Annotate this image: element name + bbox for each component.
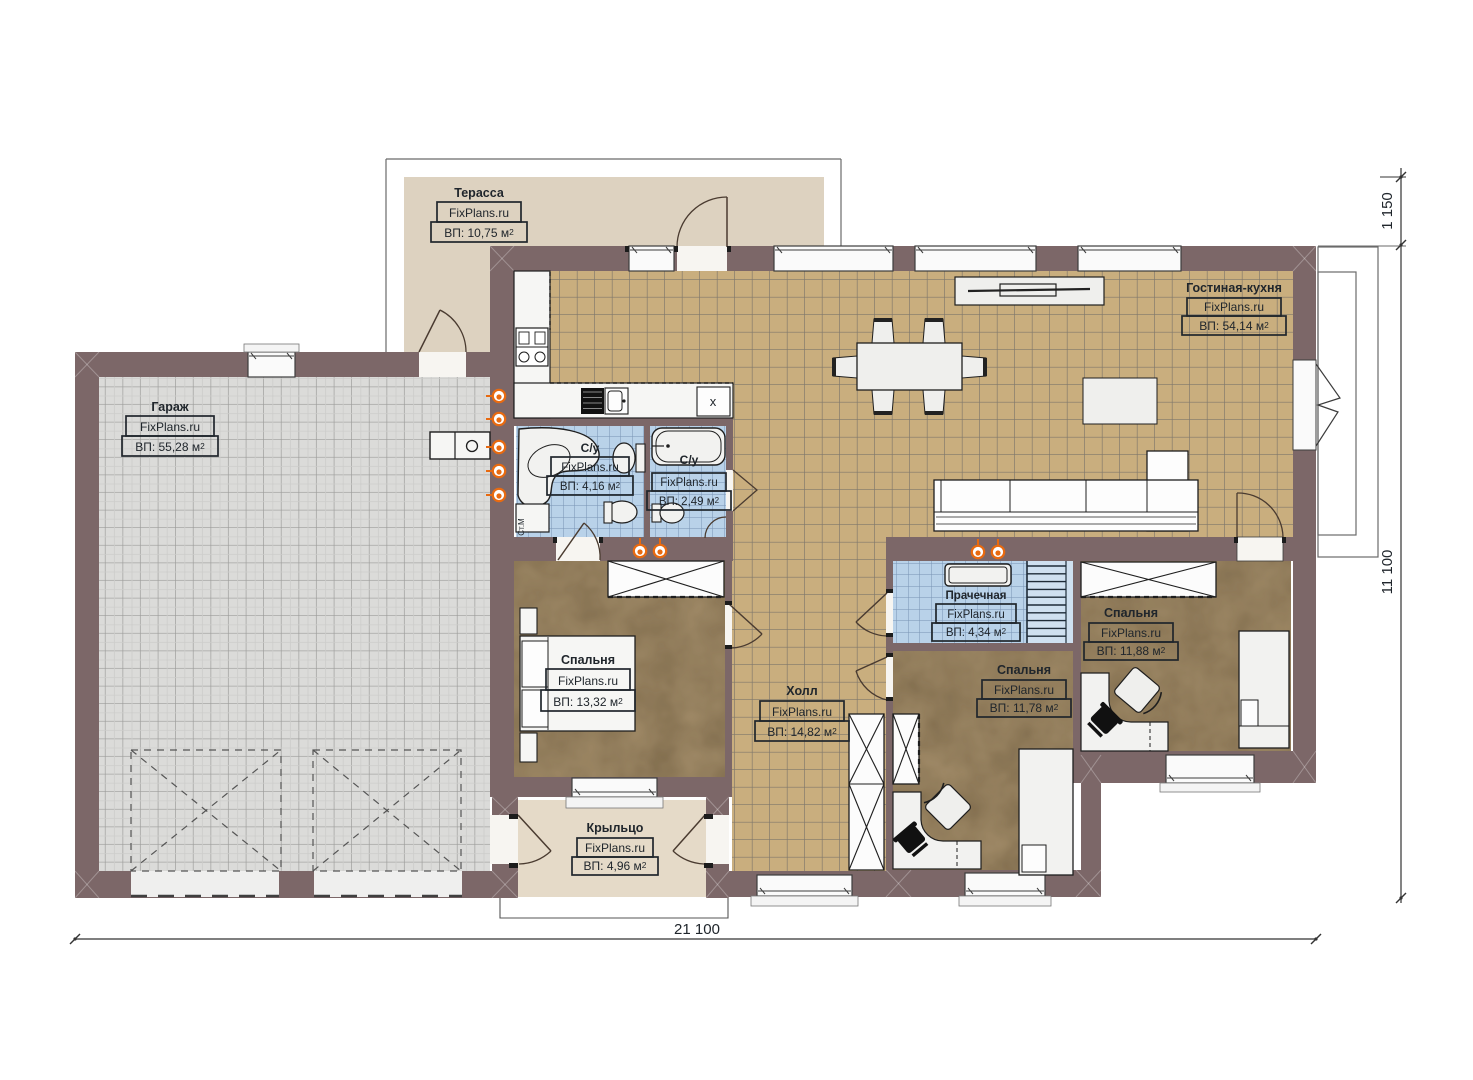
svg-text:Ст.М: Ст.М (517, 518, 526, 536)
svg-text:Крыльцо: Крыльцо (587, 821, 644, 835)
svg-text:Спальня: Спальня (561, 653, 615, 667)
svg-text:Гараж: Гараж (151, 400, 188, 414)
svg-text:ВП: 4,16 м2: ВП: 4,16 м2 (560, 481, 621, 493)
svg-text:FixPlans.ru: FixPlans.ru (585, 841, 645, 855)
svg-text:FixPlans.ru: FixPlans.ru (140, 420, 200, 434)
svg-text:FixPlans.ru: FixPlans.ru (772, 705, 832, 719)
svg-text:Прачечная: Прачечная (946, 590, 1007, 602)
svg-text:Спальня: Спальня (1104, 606, 1158, 620)
svg-text:21 100: 21 100 (674, 921, 720, 938)
svg-text:ВП: 55,28 м2: ВП: 55,28 м2 (135, 440, 205, 454)
svg-text:x: x (710, 394, 717, 409)
svg-text:ВП: 10,75 м2: ВП: 10,75 м2 (444, 226, 514, 240)
svg-text:FixPlans.ru: FixPlans.ru (1204, 300, 1264, 314)
svg-text:ВП: 11,78 м2: ВП: 11,78 м2 (990, 701, 1059, 715)
svg-text:Спальня: Спальня (997, 663, 1051, 677)
svg-text:FixPlans.ru: FixPlans.ru (947, 609, 1005, 621)
svg-text:ВП: 4,96 м2: ВП: 4,96 м2 (584, 859, 647, 873)
svg-text:ВП: 2,49 м2: ВП: 2,49 м2 (659, 496, 720, 508)
svg-text:FixPlans.ru: FixPlans.ru (558, 674, 618, 688)
svg-text:11 100: 11 100 (1379, 550, 1396, 595)
svg-text:FixPlans.ru: FixPlans.ru (449, 206, 509, 220)
svg-text:FixPlans.ru: FixPlans.ru (561, 462, 619, 474)
svg-text:ВП: 4,34 м2: ВП: 4,34 м2 (946, 627, 1007, 639)
svg-text:ВП: 11,88 м2: ВП: 11,88 м2 (1097, 644, 1166, 658)
svg-text:ВП: 54,14 м2: ВП: 54,14 м2 (1199, 319, 1269, 333)
svg-text:Холл: Холл (786, 684, 817, 698)
svg-text:ВП: 13,32 м2: ВП: 13,32 м2 (553, 695, 623, 709)
svg-text:С/у: С/у (581, 441, 600, 455)
svg-text:1 150: 1 150 (1379, 192, 1396, 230)
svg-text:С/у: С/у (680, 453, 699, 467)
svg-text:Терасса: Терасса (454, 186, 505, 200)
svg-text:FixPlans.ru: FixPlans.ru (660, 477, 718, 489)
svg-text:Гостиная-кухня: Гостиная-кухня (1186, 281, 1282, 295)
svg-text:ВП: 14,82 м2: ВП: 14,82 м2 (767, 725, 837, 739)
svg-text:FixPlans.ru: FixPlans.ru (1101, 626, 1161, 640)
svg-text:FixPlans.ru: FixPlans.ru (994, 683, 1054, 697)
